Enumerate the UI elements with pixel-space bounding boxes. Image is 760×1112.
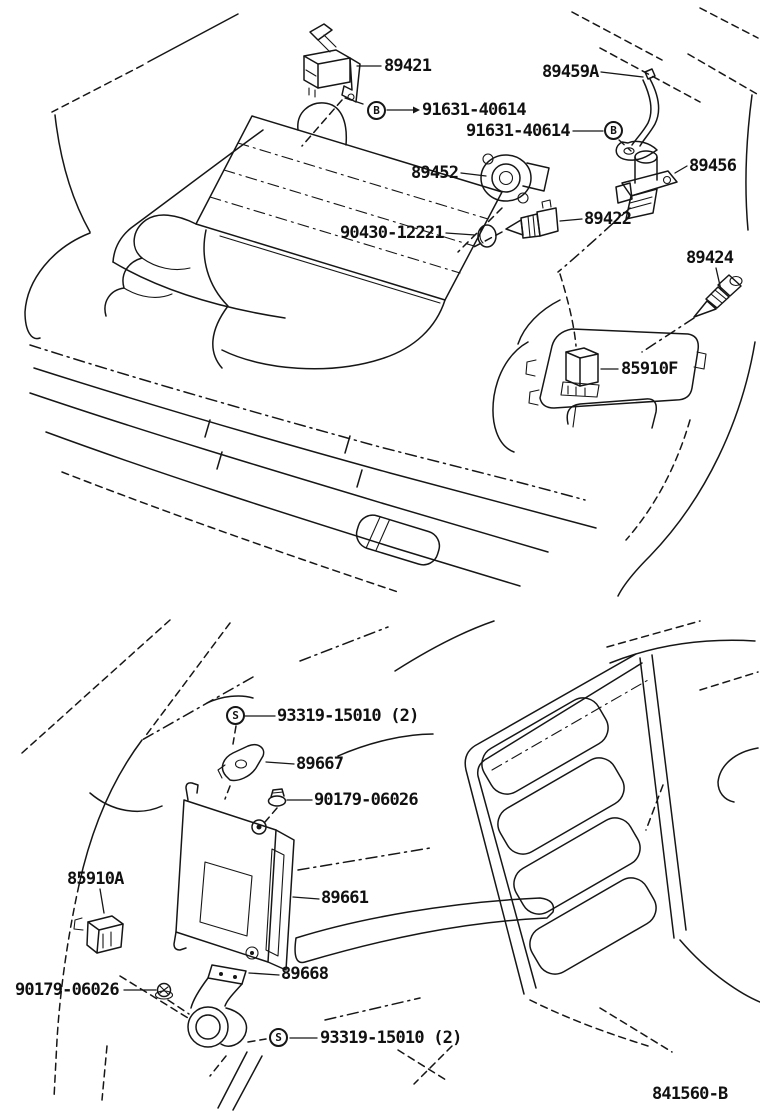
fog-lamp-drawing	[353, 511, 443, 568]
screw-symbol-s-icon: S	[269, 1028, 288, 1047]
part-label-89456: 89456	[689, 158, 736, 175]
cowl-relay-panel-line-art	[526, 329, 706, 428]
throttle-sensor-89452-drawing	[481, 154, 549, 203]
part-label-89661: 89661	[321, 890, 368, 907]
bolt-90179-top-drawing	[269, 789, 286, 806]
bolt-symbol-b-icon: B	[604, 121, 623, 140]
bracket-89459A-drawing	[616, 69, 658, 160]
cabin-assembly-dash-lines	[120, 726, 277, 1076]
bolt-symbol-b-icon: B	[367, 101, 386, 120]
vsv-sensor-89421-drawing	[304, 24, 360, 102]
part-label-93319-15010-top: 93319-15010 (2)	[277, 708, 419, 725]
part-label-89459A: 89459A	[542, 64, 599, 81]
bolt-90179-bottom-drawing	[156, 984, 173, 1000]
parts-diagram-page: 89421 B 91631-40614 89459A 91631-40614 B…	[0, 0, 760, 1112]
bracket-89667-drawing	[218, 745, 264, 781]
relay-85910F-drawing	[561, 348, 599, 397]
ecu-89661-drawing	[174, 783, 294, 970]
screw-symbol-s-icon: S	[226, 706, 245, 725]
part-label-93319-15010-bottom: 93319-15010 (2)	[320, 1030, 462, 1047]
temp-sensor-89422-drawing	[506, 200, 558, 238]
engine-valve-cover-line-art	[196, 103, 502, 303]
part-label-91631-40614-b: 91631-40614	[466, 123, 570, 140]
part-label-90179-06026-top: 90179-06026	[314, 792, 418, 809]
bumper-grille-line-art	[30, 345, 596, 592]
bracket-89668-drawing	[188, 965, 246, 1047]
line-art	[0, 0, 760, 1112]
part-label-90179-06026-bottom: 90179-06026	[15, 982, 119, 999]
engine-block-line-art	[105, 215, 560, 452]
part-label-89452: 89452	[411, 165, 458, 182]
part-label-89668: 89668	[281, 966, 328, 983]
relay-85910A-drawing	[74, 916, 123, 953]
part-label-85910F: 85910F	[621, 361, 678, 378]
drawing-code: 841560-B	[652, 1086, 727, 1103]
part-label-89421: 89421	[384, 58, 431, 75]
cabin-leader-lines	[100, 716, 319, 1038]
console-frame-line-art	[465, 654, 686, 994]
car-front-line-art	[25, 8, 758, 596]
part-label-89424: 89424	[686, 250, 733, 267]
cabin-top-curves	[300, 621, 758, 756]
part-label-91631-40614-a: 91631-40614	[422, 102, 526, 119]
part-label-89422: 89422	[584, 211, 631, 228]
part-label-90430-12221: 90430-12221	[340, 225, 444, 242]
part-label-85910A: 85910A	[67, 871, 124, 888]
gasket-90430-12221-drawing	[478, 225, 496, 247]
sensor-89424-drawing	[694, 275, 742, 317]
part-label-89667: 89667	[296, 756, 343, 773]
